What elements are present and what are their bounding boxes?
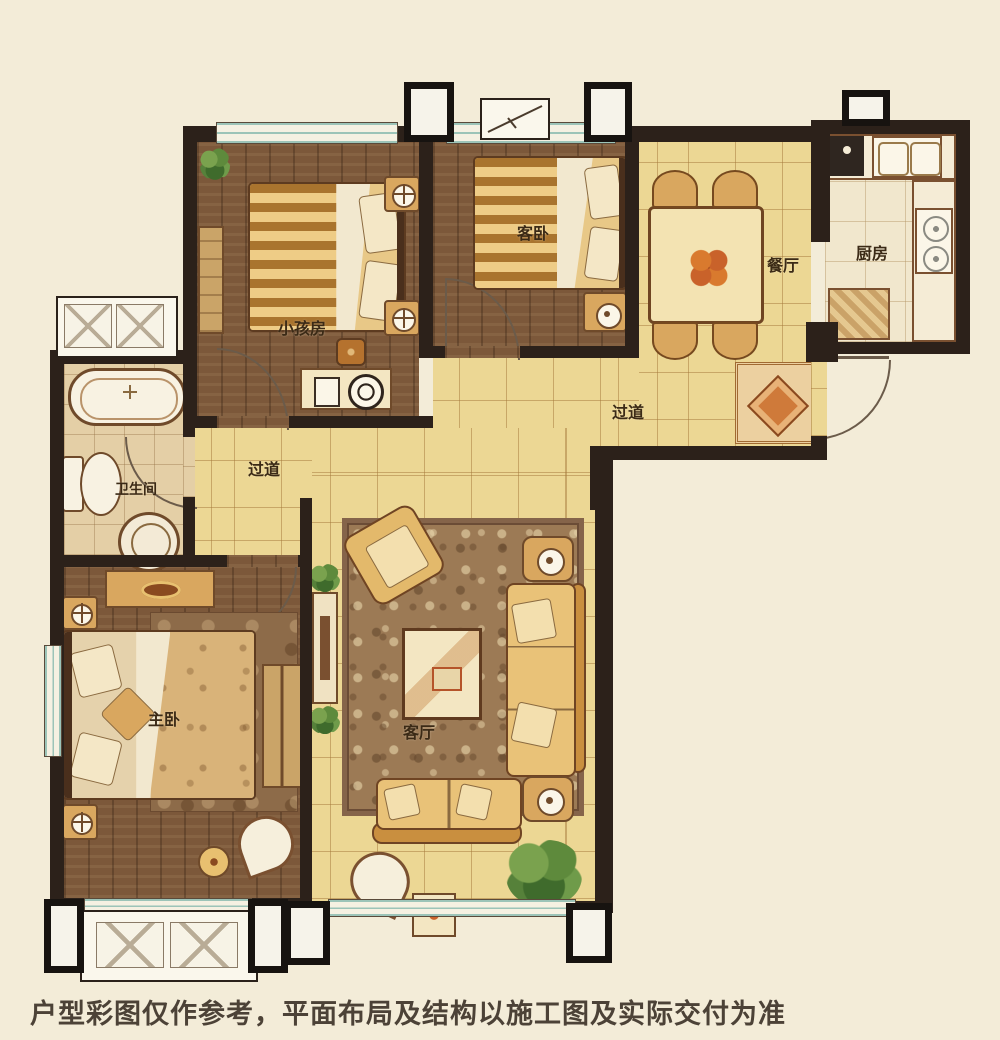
wall-guest-bottom-2 — [520, 346, 639, 358]
kitchen-sink — [872, 136, 942, 178]
window-living-bottom — [328, 899, 576, 917]
dining-table — [648, 206, 764, 324]
dining-chair-bottom-right — [712, 322, 758, 360]
column-master-bay-left — [44, 899, 84, 973]
tv-screen — [320, 616, 330, 680]
bay-window-master-pane-2 — [170, 922, 238, 968]
floor-plan: 小孩房 客卧 餐厅 厨房 过道 过道 卫生间 主卧 客厅 户型彩图仅作参考，平面… — [0, 0, 1000, 1040]
wall-bath-right-lower — [183, 497, 195, 555]
children-bed — [248, 182, 406, 332]
living-sofa-main — [506, 583, 586, 773]
dining-chair-top-left — [652, 170, 698, 208]
coffee-table-logo — [432, 667, 462, 691]
wall-dining-top — [625, 126, 815, 142]
window-master-left — [44, 645, 62, 757]
plant-living-corner — [506, 840, 582, 906]
toilet — [62, 452, 120, 514]
plant-tv-bottom — [310, 706, 340, 734]
label-children-room: 小孩房 — [278, 315, 326, 339]
door-gap-children — [217, 416, 289, 428]
guest-bed — [473, 156, 628, 290]
master-wardrobe — [262, 664, 302, 788]
desk-globe-icon — [348, 374, 384, 410]
wall-kitchen-top — [811, 120, 970, 134]
label-corridor-left: 过道 — [248, 456, 280, 480]
bay-annotation-diagonal-icon — [482, 100, 548, 138]
entry-mat-diamond — [747, 375, 809, 437]
plant-tv-top — [310, 564, 340, 592]
column-living-bottom-right — [566, 903, 612, 963]
label-kitchen: 厨房 — [856, 240, 888, 264]
bathtub — [68, 368, 186, 426]
wall-children-guest-divider — [419, 126, 433, 358]
dining-chair-bottom-left — [652, 322, 698, 360]
wall-kitchen-bottom — [838, 342, 970, 354]
wall-master-top-1 — [50, 555, 227, 567]
wall-left-outer — [50, 350, 64, 910]
kitchen-stove — [915, 208, 953, 274]
children-desk — [300, 368, 392, 410]
bay-annotation-box — [480, 98, 550, 140]
label-bathroom: 卫生间 — [115, 479, 157, 499]
children-desk-stool — [336, 338, 366, 366]
wall-children-bottom-2 — [289, 416, 433, 428]
door-gap-entry — [811, 362, 827, 436]
entry-mat — [735, 362, 815, 444]
corridor-left-floor — [195, 428, 312, 555]
master-stool — [198, 846, 230, 878]
column-living-bottom-left — [284, 901, 330, 965]
door-gap-guest — [445, 346, 520, 358]
stove-burner-2 — [923, 246, 949, 272]
column-kitchen-top — [842, 90, 890, 126]
column-master-bay-right — [248, 899, 288, 973]
wall-guest-dining-divider — [625, 126, 639, 358]
label-corridor-top: 过道 — [612, 399, 644, 423]
living-side-table-top — [522, 536, 574, 582]
label-dining-room: 餐厅 — [767, 252, 799, 276]
dining-chair-top-right — [712, 170, 758, 208]
window-children-top — [216, 122, 398, 144]
children-nightstand-top — [384, 176, 420, 212]
sink-basin-left — [878, 142, 909, 176]
disclaimer-text: 户型彩图仅作参考，平面布局及结构以施工图及实际交付为准 — [30, 992, 786, 1031]
guest-nightstand — [583, 292, 627, 332]
wall-entry-top-stub — [811, 342, 827, 362]
bay-window-bathroom-pane-1 — [64, 304, 112, 348]
plant-children-corner — [200, 148, 230, 180]
coffee-table — [402, 628, 482, 720]
master-nightstand-bottom — [62, 804, 98, 840]
master-nightstand-top — [62, 596, 98, 630]
label-guest-bedroom: 客卧 — [517, 220, 549, 244]
wall-living-left — [300, 498, 312, 913]
floor-plan-page: { "plan": { "title": "residential-floor-… — [0, 0, 1000, 1040]
wall-hall-bottom — [590, 446, 827, 460]
tv-cabinet — [312, 592, 338, 704]
wall-guest-bottom-1 — [419, 346, 445, 358]
wall-kitchen-right — [956, 120, 970, 354]
dresser-decor — [141, 581, 181, 599]
label-living-room: 客厅 — [403, 719, 435, 743]
desk-book-icon — [314, 377, 340, 407]
children-shelf — [198, 226, 224, 334]
column-top-right — [584, 82, 632, 142]
label-master-bedroom: 主卧 — [148, 706, 180, 730]
children-nightstand-bottom — [384, 300, 420, 336]
wall-bath-right-upper — [183, 350, 195, 437]
door-gap-bathroom — [183, 437, 195, 497]
wall-dining-kitchen-divider — [811, 120, 830, 242]
sink-basin-right — [910, 142, 941, 176]
stove-burner-1 — [923, 216, 949, 242]
dining-table-flower-icon — [689, 249, 729, 287]
door-gap-master — [227, 555, 298, 567]
column-top-left — [404, 82, 454, 142]
bay-window-master-pane-1 — [96, 922, 164, 968]
wall-living-right — [595, 446, 613, 913]
kitchen-appliance — [830, 136, 864, 176]
living-loveseat — [372, 778, 522, 844]
living-side-table-bottom — [522, 776, 574, 822]
master-dresser — [105, 570, 215, 608]
bay-window-bathroom-pane-2 — [116, 304, 164, 348]
